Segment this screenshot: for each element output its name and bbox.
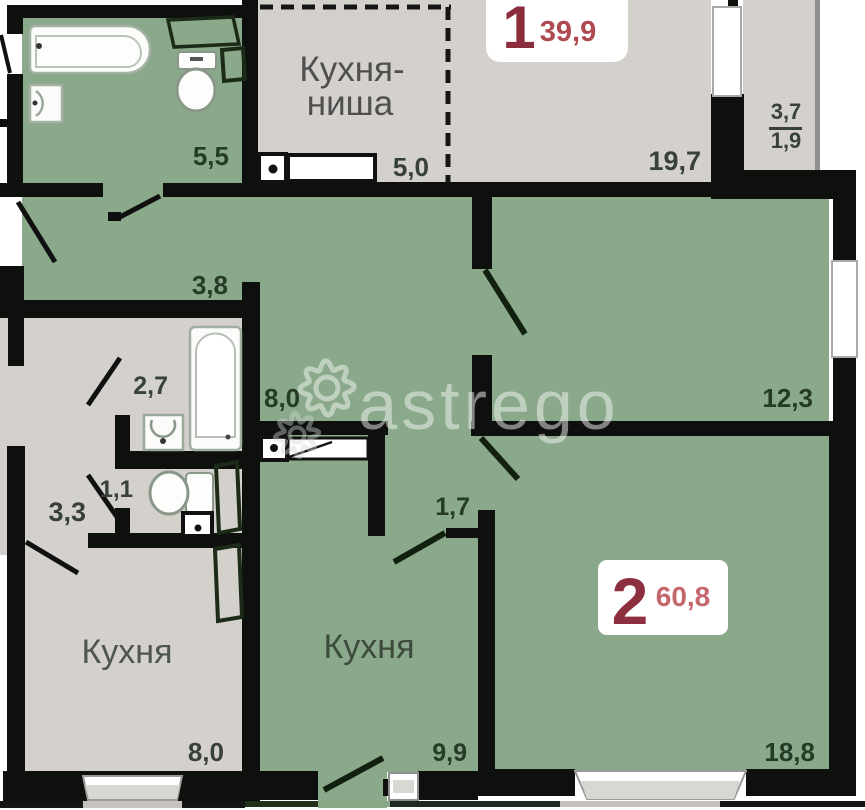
svg-text:ниша: ниша: [307, 84, 394, 123]
svg-text:Кухня: Кухня: [324, 628, 415, 666]
svg-text:3,7: 3,7: [771, 99, 802, 124]
svg-text:9,9: 9,9: [432, 739, 467, 767]
svg-text:5,5: 5,5: [193, 141, 229, 171]
svg-text:8,0: 8,0: [188, 737, 224, 767]
svg-text:18,8: 18,8: [764, 737, 815, 767]
svg-text:Кухня: Кухня: [82, 633, 173, 671]
svg-text:5,0: 5,0: [393, 152, 429, 182]
svg-text:60,8: 60,8: [656, 581, 711, 612]
svg-text:19,7: 19,7: [648, 146, 701, 176]
svg-text:1,7: 1,7: [435, 493, 470, 521]
svg-text:3,3: 3,3: [48, 497, 86, 527]
svg-text:8,0: 8,0: [264, 383, 300, 413]
svg-text:2,7: 2,7: [133, 372, 168, 400]
svg-text:1: 1: [502, 0, 535, 61]
svg-text:12,3: 12,3: [762, 383, 813, 413]
svg-text:2: 2: [612, 564, 649, 638]
svg-text:39,9: 39,9: [540, 16, 596, 48]
svg-text:1,1: 1,1: [100, 476, 133, 503]
svg-text:3,8: 3,8: [192, 270, 228, 300]
svg-text:1,9: 1,9: [771, 128, 802, 153]
svg-text:astrego: astrego: [358, 366, 619, 444]
